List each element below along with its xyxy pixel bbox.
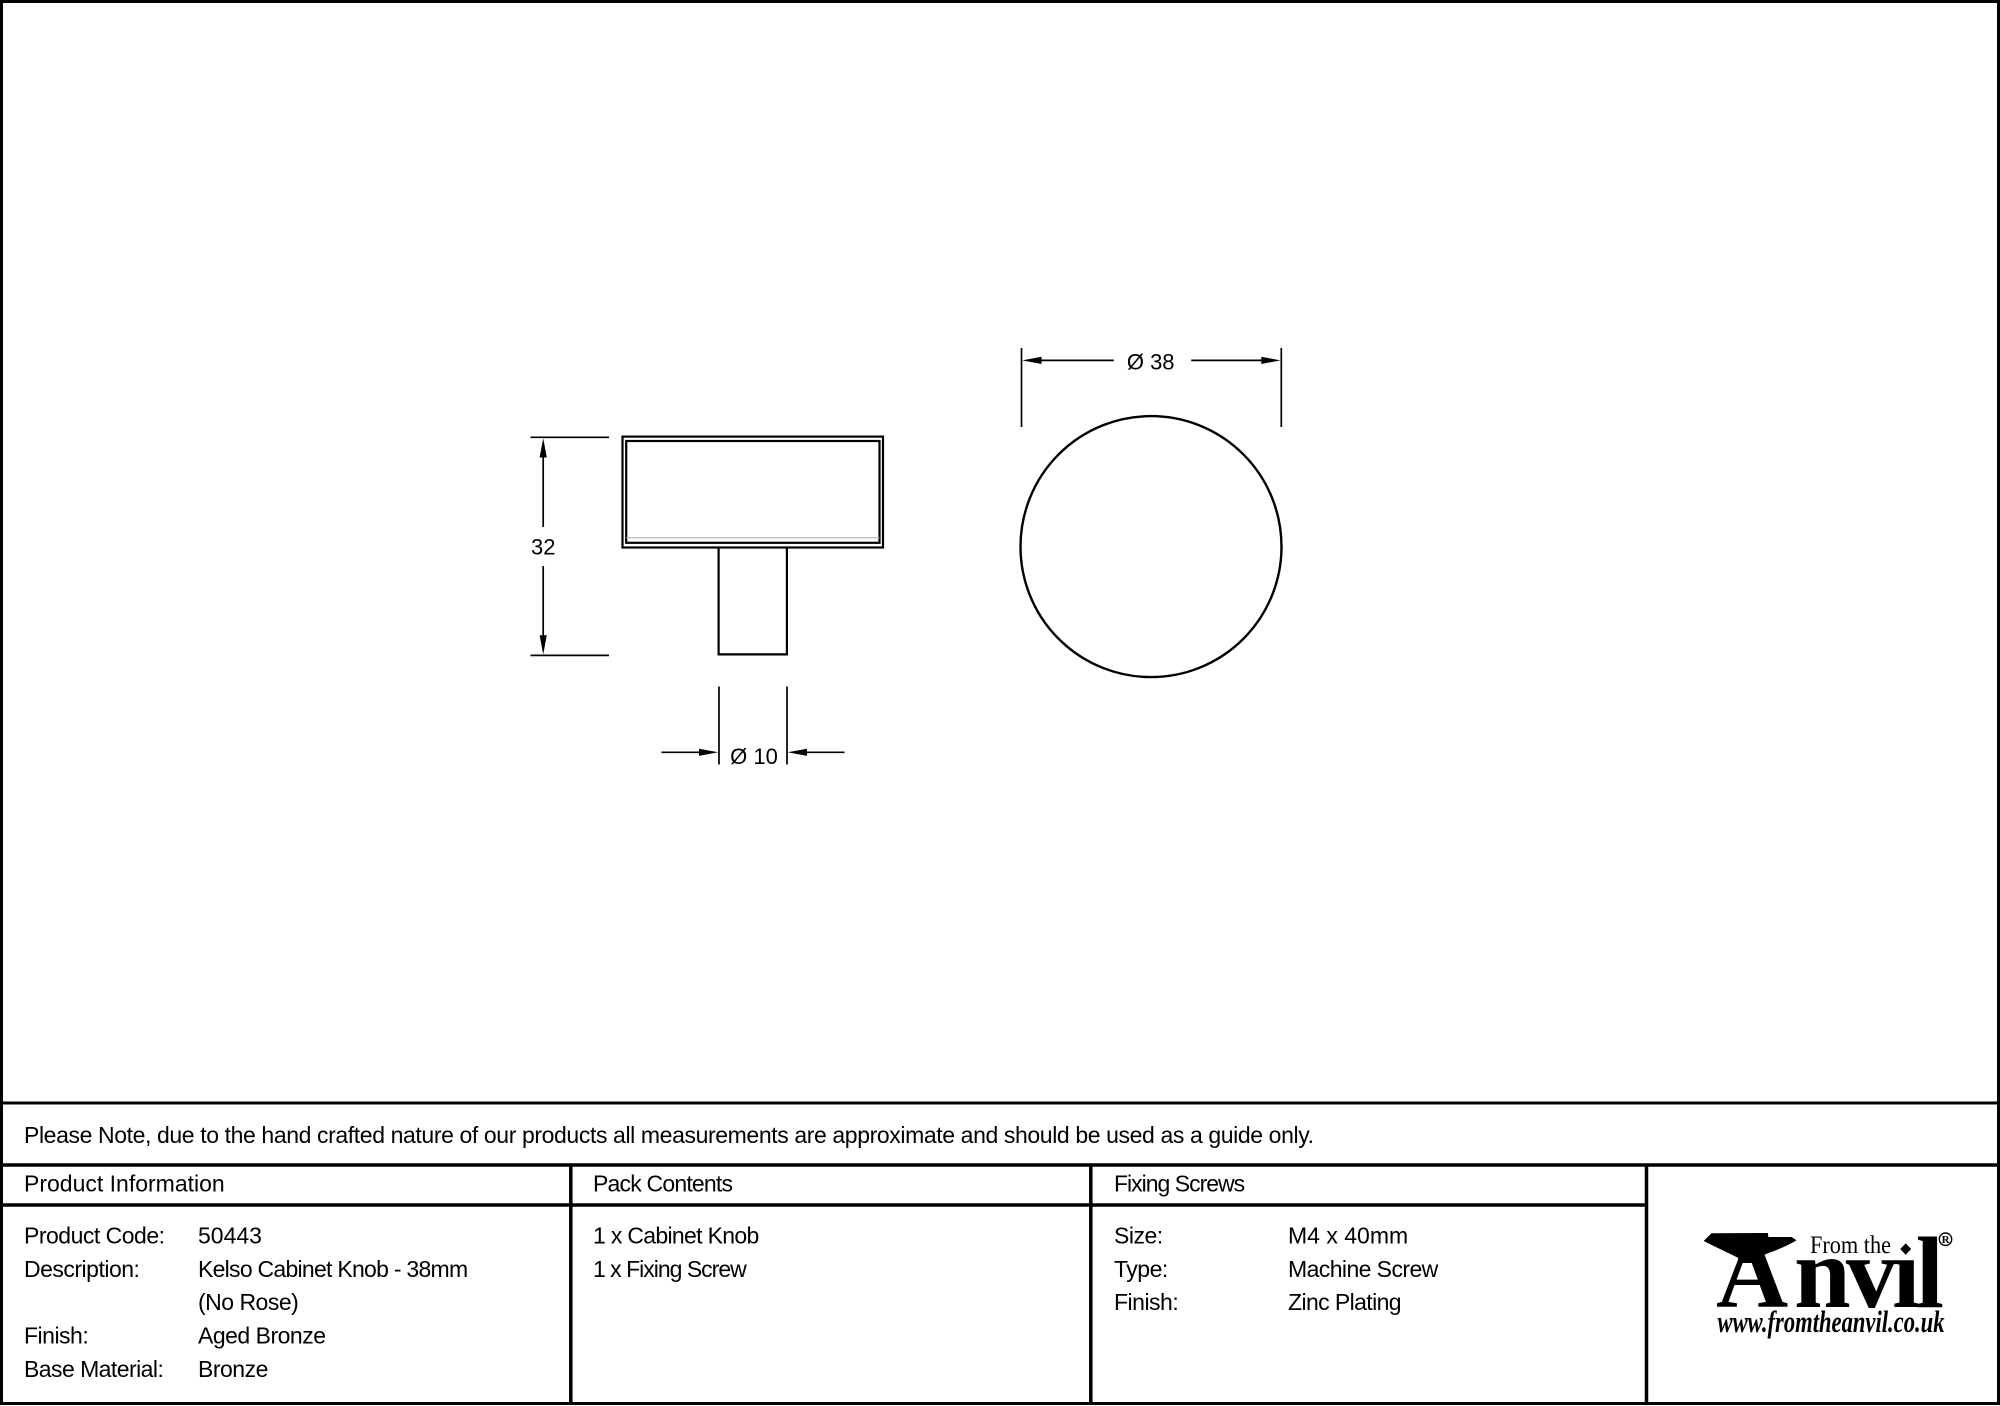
svg-text:Finish:: Finish: [24, 1323, 88, 1349]
svg-text:Aged Bronze: Aged Bronze [198, 1323, 325, 1349]
svg-text:32: 32 [531, 535, 555, 560]
svg-text:50443: 50443 [198, 1222, 262, 1248]
svg-text:1 x Cabinet Knob: 1 x Cabinet Knob [593, 1222, 759, 1248]
svg-text:Ø 38: Ø 38 [1127, 349, 1175, 374]
svg-text:www.fromtheanvil.co.uk: www.fromtheanvil.co.uk [1718, 1304, 1945, 1339]
svg-text:Description:: Description: [24, 1256, 139, 1282]
svg-text:Zinc Plating: Zinc Plating [1288, 1289, 1401, 1315]
svg-text:R: R [1942, 1234, 1951, 1246]
svg-text:1 x Fixing Screw: 1 x Fixing Screw [593, 1256, 747, 1282]
svg-text:Pack Contents: Pack Contents [593, 1171, 732, 1197]
svg-text:Machine Screw: Machine Screw [1288, 1256, 1439, 1282]
svg-text:Kelso Cabinet Knob - 38mm: Kelso Cabinet Knob - 38mm [198, 1256, 467, 1282]
svg-text:(No Rose): (No Rose) [198, 1289, 298, 1315]
svg-text:Ø 10: Ø 10 [730, 744, 778, 769]
svg-text:Product Information: Product Information [24, 1171, 225, 1197]
svg-text:Fixing Screws: Fixing Screws [1114, 1171, 1245, 1197]
svg-text:Bronze: Bronze [198, 1356, 268, 1382]
svg-text:M4 x 40mm: M4 x 40mm [1288, 1222, 1408, 1248]
svg-text:Finish:: Finish: [1114, 1289, 1178, 1315]
svg-text:Size:: Size: [1114, 1222, 1163, 1248]
svg-text:Base Material:: Base Material: [24, 1356, 163, 1382]
svg-text:Please Note, due to the hand c: Please Note, due to the hand crafted nat… [24, 1122, 1314, 1148]
svg-text:Type:: Type: [1114, 1256, 1168, 1282]
svg-text:Product Code:: Product Code: [24, 1222, 165, 1248]
